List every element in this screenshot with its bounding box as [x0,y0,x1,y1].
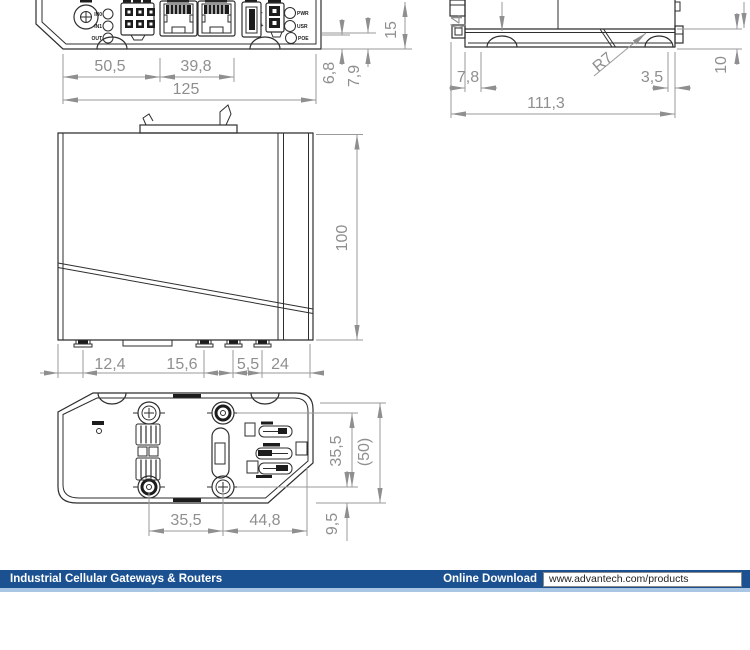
dim-left-height: 100 [334,225,351,252]
led-label-usr: USR [297,24,308,30]
led-label-poe: POE [298,36,309,42]
footer-url-link[interactable]: www.advantech.com/products [543,572,742,587]
dim-bottom-v1: 35,5 [328,435,345,466]
screw-top-right [207,402,239,424]
side-feet [487,36,673,47]
led-label-pwr: PWR [297,11,309,17]
dim-left-s2: 15,6 [166,356,197,373]
dim-side-cut: (4 [449,15,466,29]
bottom-view: 35,5 44,8 35,5 (50) 9,5 [58,393,386,541]
io-label-in0: IN0 [94,12,102,18]
vent-pads [136,424,160,480]
side-latch [675,2,683,43]
dim-front-w1: 50,5 [94,58,125,75]
front-view-dimensions: 50,5 39,8 125 6,8 7,9 15 [63,2,412,104]
din-rail-clip [140,105,237,133]
technical-drawing: IN0 IN1 OUT [0,0,750,566]
terminal-connector [121,0,155,40]
dim-front-total: 125 [173,81,200,98]
dim-bottom-w1: 35,5 [170,512,201,529]
footer-download-label: Online Download [443,573,537,585]
dim-side-total: 111,3 [527,95,565,112]
side-view: (4 R7 7,8 3,5 111,3 10 [449,0,744,118]
reset-hole [92,421,104,434]
footer-accent-strip [0,588,750,592]
io-indicators: IN0 IN1 OUT [91,9,113,43]
footer-bar: Industrial Cellular Gateways & Routers O… [0,570,750,588]
ethernet-port-2 [198,0,235,36]
dim-bottom-v3: 9,5 [324,513,341,535]
status-leds: PWR USR POE [285,8,310,44]
dim-left-s3: 5,5 [237,356,259,373]
polarity-plus: + [261,23,264,29]
dim-side-o1: 7,8 [457,69,479,86]
dim-front-w2: 39,8 [180,58,211,75]
usb-port [242,0,261,37]
screw-top-left [133,402,165,424]
side-view-dimensions: (4 R7 7,8 3,5 111,3 10 [449,2,744,118]
io-label-out: OUT [91,36,102,42]
dim-bottom-v2: (50) [356,438,373,466]
dim-side-radius: R7 [590,49,617,75]
dim-bottom-w2: 44,8 [249,512,280,529]
dim-front-h1: 6,8 [321,62,338,84]
front-feet [97,37,280,49]
ethernet-port-1 [160,0,197,36]
front-view: IN0 IN1 OUT [36,0,412,104]
left-side-view: 100 12,4 15,6 5,5 24 [40,105,363,378]
datasheet-page: IN0 IN1 OUT [0,0,750,650]
dim-side-o2: 3,5 [641,69,663,86]
center-slot [212,428,229,478]
polarity-minus: - [261,10,263,16]
io-label-in1: IN1 [94,24,102,30]
dim-side-h: 10 [713,56,730,74]
dim-front-h3: 15 [383,21,400,39]
bottom-feet [74,340,271,347]
footer-download-group: Online Download www.advantech.com/produc… [443,572,742,587]
dim-left-s4: 24 [271,356,289,373]
dim-front-h2: 7,9 [346,65,363,87]
power-connector: - + [261,0,284,37]
dim-left-s1: 12,4 [94,356,125,373]
footer-title: Industrial Cellular Gateways & Routers [10,573,222,585]
